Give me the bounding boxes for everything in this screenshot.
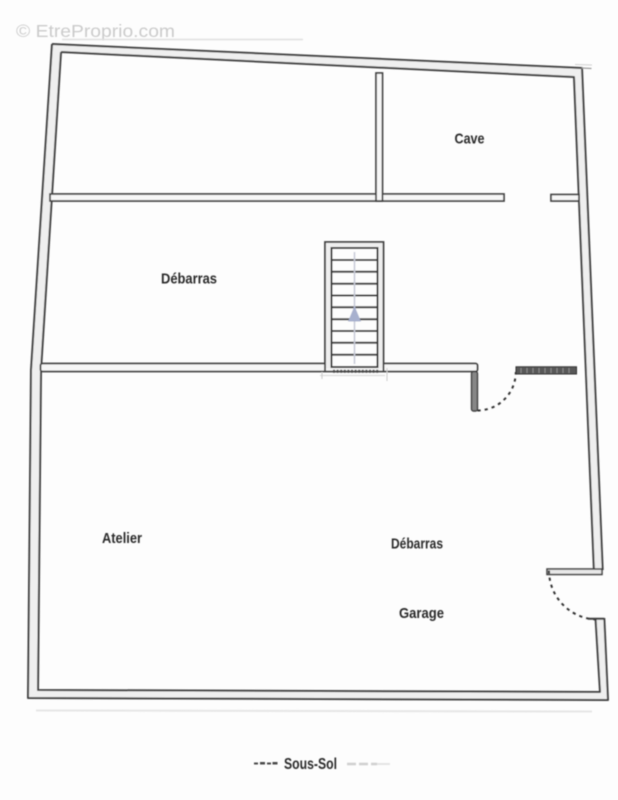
svg-text:Atelier: Atelier — [102, 530, 142, 547]
svg-text:Débarras: Débarras — [161, 271, 217, 288]
svg-text:Cave: Cave — [455, 130, 485, 147]
svg-text:Sous-Sol: Sous-Sol — [284, 756, 337, 773]
svg-text:© EtreProprio.com: © EtreProprio.com — [16, 21, 175, 41]
svg-text:Garage: Garage — [399, 605, 444, 622]
svg-text:Débarras: Débarras — [391, 536, 443, 553]
